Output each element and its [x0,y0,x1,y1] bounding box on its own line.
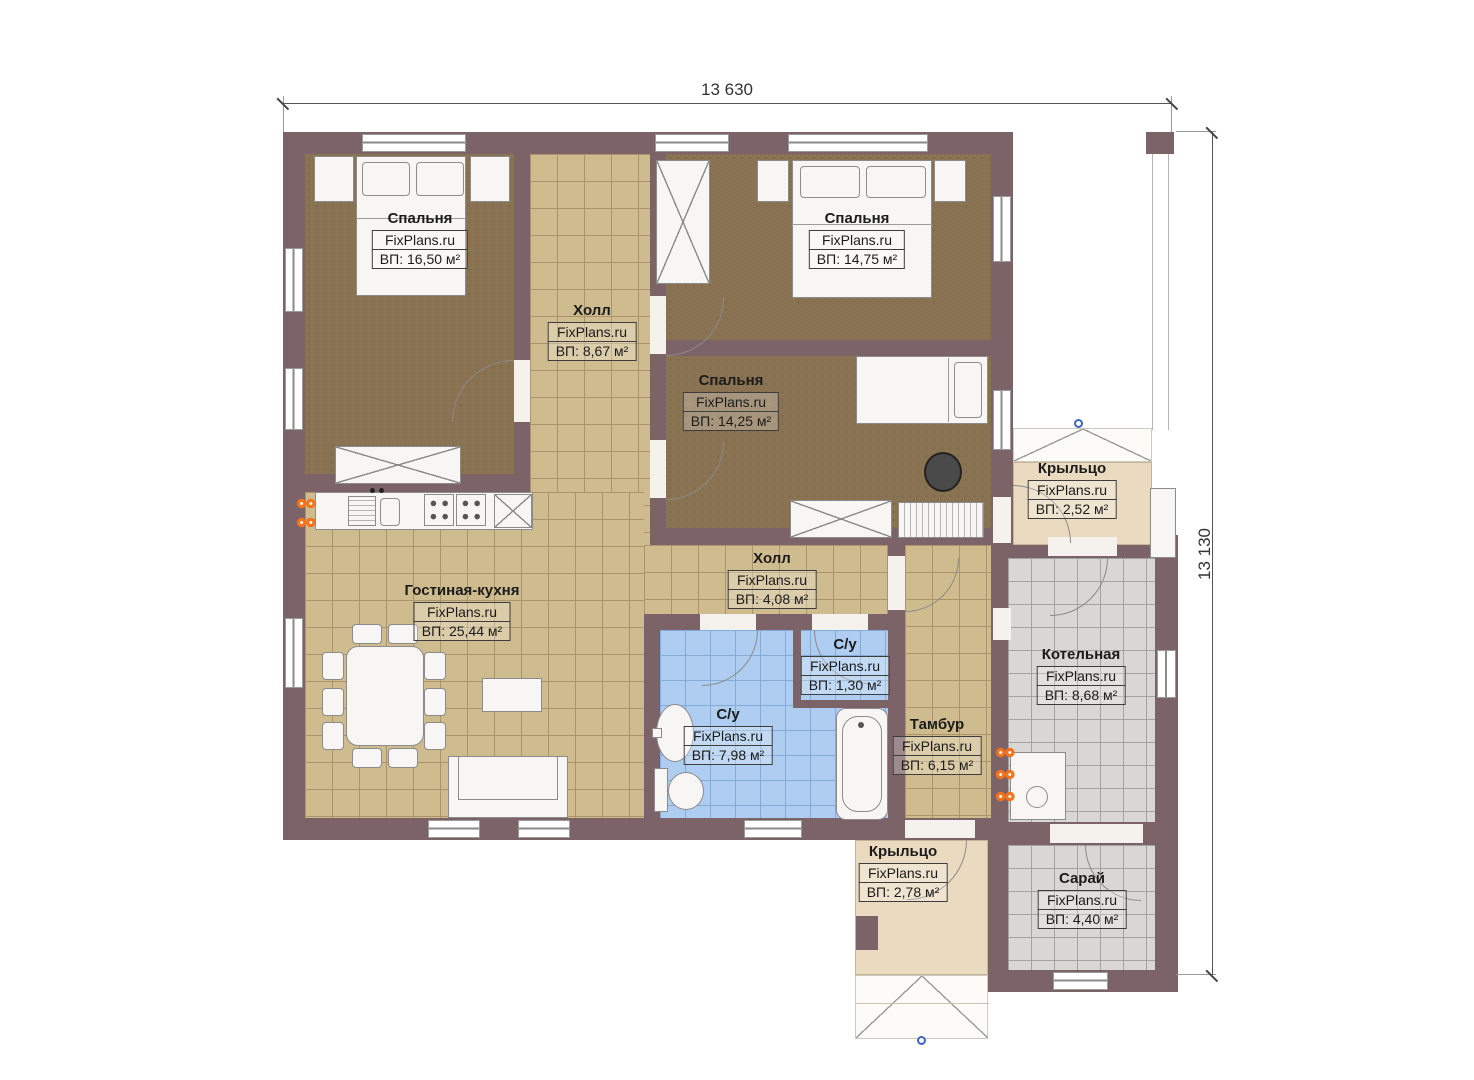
room-label-porch-bottom: Крыльцо FixPlans.ru ВП: 2,78 м² [859,843,948,902]
window [285,248,303,312]
room-name: Спальня [683,372,779,389]
chair [322,652,344,680]
room-area: ВП: 25,44 м² [414,621,510,641]
marker-dot [1074,419,1083,428]
marker-dot [917,1036,926,1045]
door-opening [650,296,666,354]
roof-line [856,976,922,1038]
door-opening [993,608,1011,640]
room-area: ВП: 4,40 м² [1038,909,1127,929]
room-area: ВП: 14,25 м² [683,411,779,431]
window [788,134,928,152]
window [285,368,303,430]
room-brand: FixPlans.ru [683,392,779,412]
door-opening [514,360,530,422]
step-line [856,1003,989,1004]
room-area: ВП: 6,15 м² [893,755,982,775]
stove-burner [424,494,454,526]
door-opening [650,440,666,498]
window [744,820,802,838]
wardrobe [656,160,710,284]
room-label-bedroom-2: Спальня FixPlans.ru ВП: 14,75 м² [809,210,905,269]
faucet-dot [379,488,384,493]
chair [352,624,382,644]
room-name: Холл [728,550,817,567]
door-opening [993,497,1011,543]
radiator [295,516,317,529]
chair [352,748,382,768]
door-opening [812,614,868,630]
room-name: Сарай [1038,870,1127,887]
chair [424,722,446,750]
nightstand [470,156,510,202]
extension-line [283,96,284,132]
roof-line [922,976,988,1038]
wardrobe [335,446,461,484]
basin-tap [652,728,662,738]
room-brand: FixPlans.ru [859,863,948,883]
chair [424,652,446,680]
dimension-label-height: 13 130 [1195,504,1215,604]
chair [388,748,418,768]
porch-roof-right [1013,428,1152,462]
wardrobe [790,500,892,538]
nightstand [314,156,354,202]
boiler-dial [1026,786,1048,808]
partition-wall [793,700,888,708]
dimension-label-width: 13 630 [677,80,777,100]
room-brand: FixPlans.ru [728,570,817,590]
stove-burner [456,494,486,526]
room-brand: FixPlans.ru [893,736,982,756]
toilet-bowl [668,772,704,810]
room-name: С/у [801,636,890,653]
room-area: ВП: 4,08 м² [728,589,817,609]
room-brand: FixPlans.ru [801,656,890,676]
room-brand: FixPlans.ru [372,230,468,250]
sofa-seat [458,756,558,800]
pot [924,452,962,492]
room-label-bedroom-1: Спальня FixPlans.ru ВП: 16,50 м² [372,210,468,269]
room-label-wc-main: С/у FixPlans.ru ВП: 7,98 м² [684,706,773,765]
window [993,196,1011,262]
window [362,134,466,152]
door-opening [888,556,905,610]
pillow [866,166,926,198]
room-label-shed: Сарай FixPlans.ru ВП: 4,40 м² [1038,870,1127,929]
pillow [954,362,982,418]
room-label-living-kitchen: Гостиная-кухня FixPlans.ru ВП: 25,44 м² [405,582,520,641]
radiator [994,746,1016,759]
room-label-hall-lower: Холл FixPlans.ru ВП: 4,08 м² [728,550,817,609]
chair [322,688,344,716]
pergola-post [1152,154,1153,430]
room-name: Крыльцо [1028,460,1117,477]
floor-plan: 13 630 13 130 [0,0,1474,1080]
window [1157,650,1176,698]
room-brand: FixPlans.ru [1038,890,1127,910]
coffee-table [482,678,542,712]
radiator [994,790,1016,803]
room-area: ВП: 16,50 м² [372,249,468,269]
room-brand: FixPlans.ru [809,230,905,250]
room-name: Холл [548,302,637,319]
room-area: ВП: 2,78 м² [859,882,948,902]
room-brand: FixPlans.ru [414,602,510,622]
door-opening [700,614,756,630]
room-name: Крыльцо [859,843,948,860]
room-brand: FixPlans.ru [684,726,773,746]
room-area: ВП: 7,98 м² [684,745,773,765]
room-label-bedroom-3: Спальня FixPlans.ru ВП: 14,25 м² [683,372,779,431]
roof-line [1014,429,1083,461]
bed-divider-line [948,358,949,422]
sink-drainboard [348,496,376,526]
dresser [898,502,984,538]
room-brand: FixPlans.ru [548,322,637,342]
room-label-vestibule: Тамбур FixPlans.ru ВП: 6,15 м² [893,716,982,775]
dining-table [346,646,424,746]
room-area: ВП: 8,68 м² [1037,685,1126,705]
room-brand: FixPlans.ru [1028,480,1117,500]
dimension-line-top [283,103,1172,104]
room-label-porch-right: Крыльцо FixPlans.ru ВП: 2,52 м² [1028,460,1117,519]
window [285,618,303,688]
pillow [362,162,410,196]
window [1053,972,1108,990]
room-name: Гостиная-кухня [405,582,520,599]
pergola-post [1168,154,1169,430]
porch-post [1150,488,1176,558]
appliance-cabinet [494,494,532,528]
room-name: Спальня [809,210,905,227]
window [518,820,570,838]
nightstand [934,160,966,202]
room-name: Котельная [1037,646,1126,663]
room-label-hall-upper: Холл FixPlans.ru ВП: 8,67 м² [548,302,637,361]
room-label-boiler-room: Котельная FixPlans.ru ВП: 8,68 м² [1037,646,1126,705]
window [428,820,480,838]
room-label-wc-small: С/у FixPlans.ru ВП: 1,30 м² [801,636,890,695]
chair [424,688,446,716]
room-area: ВП: 8,67 м² [548,341,637,361]
radiator [295,497,317,510]
porch-pillar [856,916,878,950]
window [993,390,1011,450]
room-name: Тамбур [893,716,982,733]
pillow [800,166,860,198]
room-area: ВП: 2,52 м² [1028,499,1117,519]
bathtub-inner [842,716,882,812]
pillow [416,162,464,196]
faucet-dot [370,488,375,493]
window [655,134,729,152]
room-area: ВП: 1,30 м² [801,675,890,695]
room-name: С/у [684,706,773,723]
chair [322,722,344,750]
room-area: ВП: 14,75 м² [809,249,905,269]
toilet-tank [654,768,668,812]
door-opening [905,820,975,838]
room-name: Спальня [372,210,468,227]
kitchen-sink [380,498,400,526]
bathtub-drain [858,722,864,728]
roof-line [1083,429,1151,461]
door-opening [1050,824,1143,843]
pergola-post-cap [1146,132,1174,154]
room-brand: FixPlans.ru [1037,666,1126,686]
radiator [994,768,1016,781]
nightstand [757,160,789,202]
porch-steps-bottom [855,975,988,1039]
